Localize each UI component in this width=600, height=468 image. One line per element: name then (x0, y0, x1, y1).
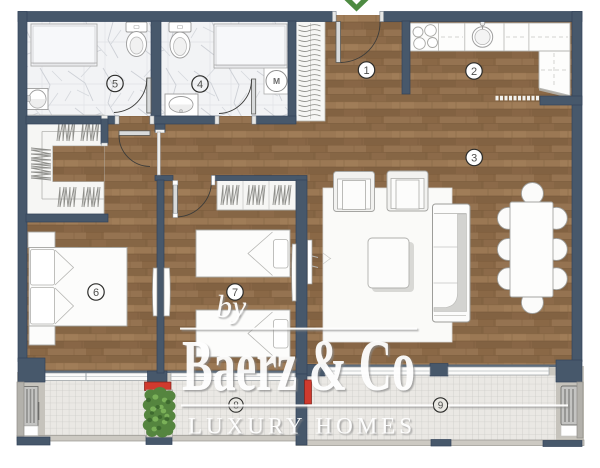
svg-text:9: 9 (438, 401, 444, 412)
svg-text:4: 4 (197, 79, 203, 91)
svg-text:1: 1 (363, 65, 369, 77)
svg-text:5: 5 (112, 79, 118, 91)
svg-text:M: M (273, 76, 280, 86)
svg-text:2: 2 (471, 66, 477, 78)
svg-text:Baerz & Co: Baerz & Co (182, 325, 415, 406)
svg-text:3: 3 (471, 153, 477, 165)
svg-text:LUXURY HOMES: LUXURY HOMES (188, 414, 416, 439)
svg-text:by: by (216, 288, 247, 324)
svg-text:6: 6 (93, 287, 99, 299)
